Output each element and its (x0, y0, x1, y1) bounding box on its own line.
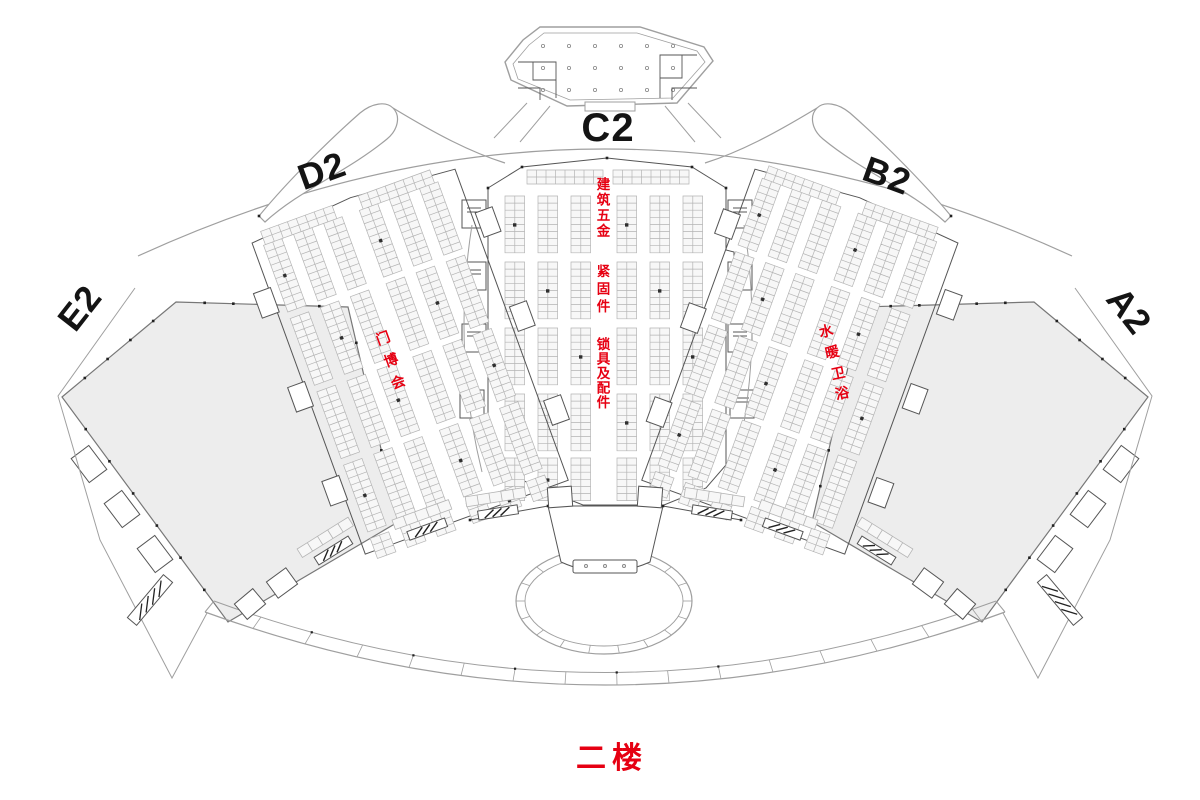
zone-line: 锁具及配件 (594, 337, 610, 410)
floor-plan: C2 D2 B2 E2 A2 建筑五金 紧固件 锁具及配件 门博会 水暖卫浴 二… (0, 0, 1200, 800)
hall-label-c2: C2 (581, 108, 634, 148)
zone-label-char: 卫 (827, 362, 848, 383)
floor-title: 二楼 (576, 733, 648, 777)
zone-label-char: 浴 (831, 382, 852, 403)
zone-label-char: 水 (815, 320, 836, 341)
zone-line: 建筑五金 (594, 177, 610, 239)
zone-line: 紧固件 (594, 264, 610, 317)
zone-label-char: 暖 (821, 341, 842, 362)
